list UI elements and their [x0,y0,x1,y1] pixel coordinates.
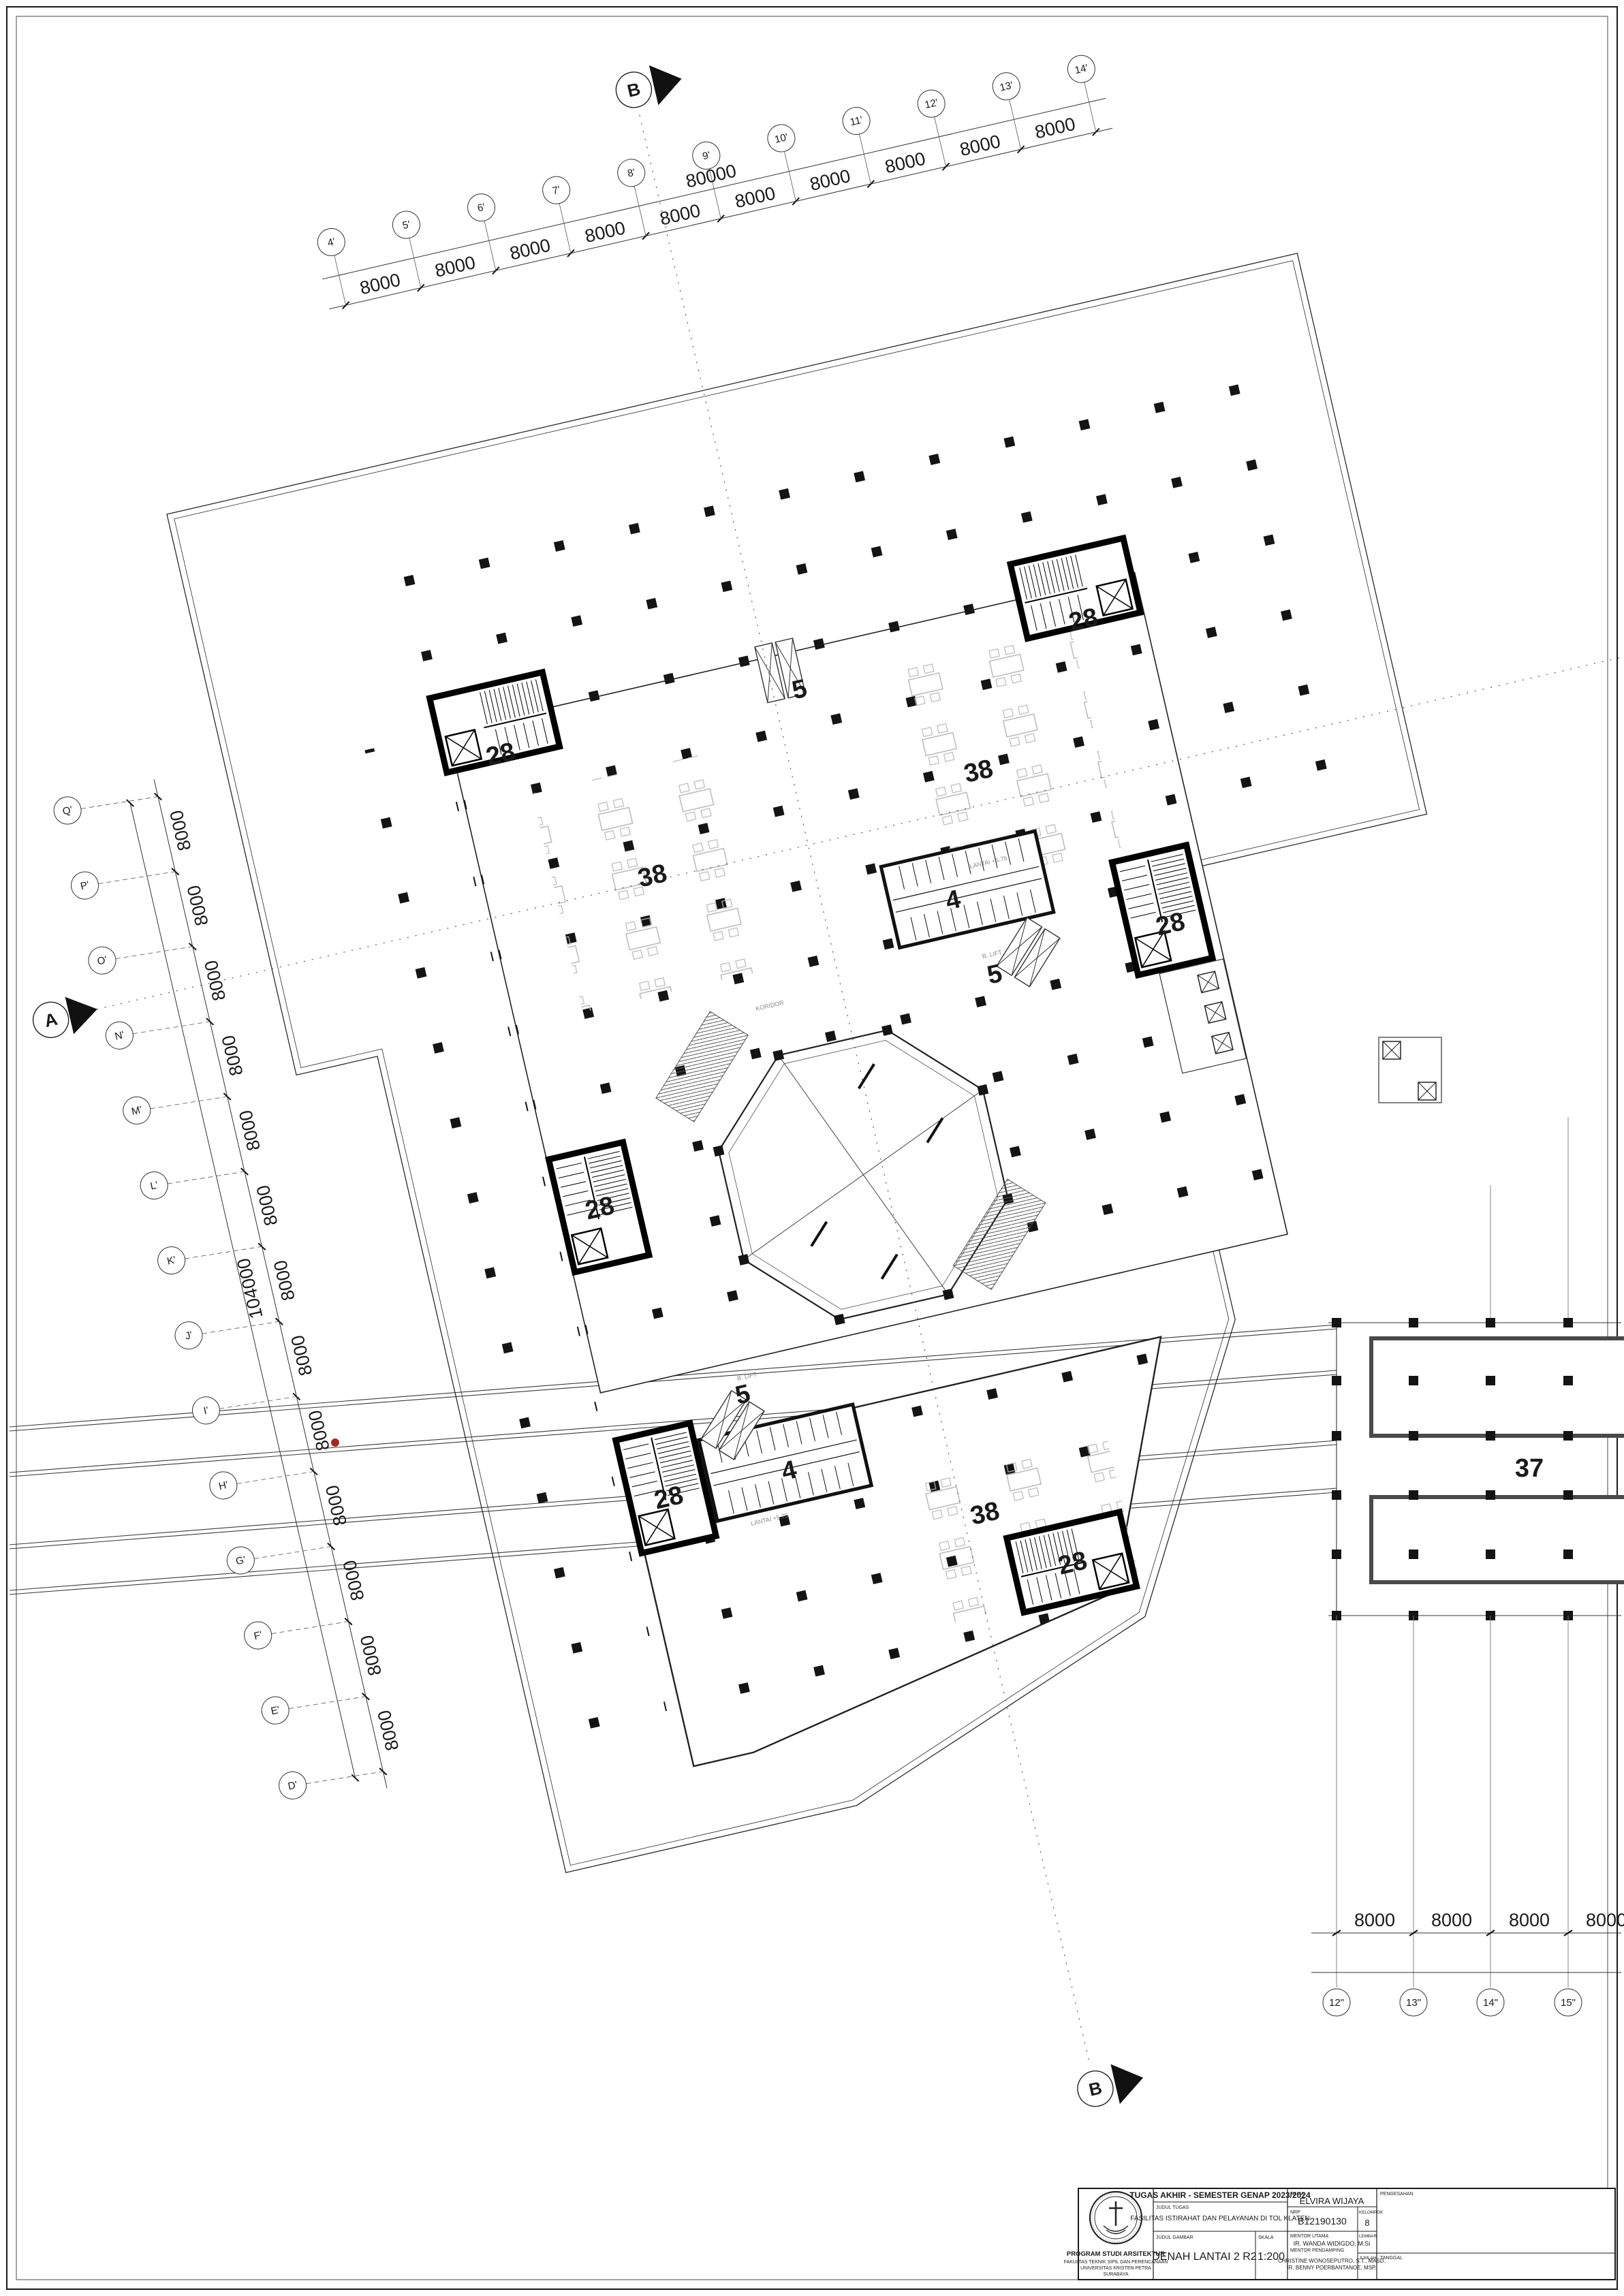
dim-8000: 8000 [1586,1910,1624,1930]
institution-line-1: PROGRAM STUDI ARSITEKTUR [1067,2250,1165,2258]
dim-8000: 8000 [358,270,402,299]
dim-8000: 8000 [200,958,230,1003]
institution-line-4: SURABAYA [1103,2272,1128,2277]
dim-8000: 8000 [1033,114,1077,143]
dim-8000: 8000 [958,131,1002,160]
dim-8000: 8000 [218,1033,247,1078]
grid-bubble-label: 14" [1483,1997,1498,2009]
mentor-utama-label: MENTOR UTAMA [1290,2234,1328,2239]
dim-8000: 8000 [235,1108,264,1152]
mentor-pendamping-label: MENTOR PENDAMPING [1290,2248,1344,2253]
grid-bubble-label: 12" [1329,1997,1344,2009]
section-marker-b-top: B [612,59,686,114]
dim-8000: 8000 [270,1258,299,1302]
left-grid-bubbles: Q' P' O' N' M' L' K' J' I' H' G' F' E' D… [51,794,309,1802]
nrp-label: NRP [1290,2210,1300,2215]
judul-gambar-value: DENAH LANTAI 2 R2 [1152,2251,1257,2263]
pengesahan-label: PENGESAHAN [1380,2192,1414,2197]
note-lift: B. LIFT [736,1371,758,1382]
kelompok-value: 8 [1364,2218,1369,2228]
institution-line-3: UNIVERSITAS KRISTEN PETRA [1080,2266,1151,2271]
top-grid-strip: 8000 8000 8000 8000 8000 8000 8000 8000 … [311,52,1113,311]
dim-8000: 8000 [356,1633,386,1678]
left-grid-strip: 8000 8000 8000 8000 8000 8000 8000 8000 … [51,771,411,1812]
bottom-grid-bubbles: 12" 13" 14" 15" [1323,1989,1582,2016]
dim-8000: 8000 [1509,1910,1550,1930]
section-marker-a: A [29,990,101,1042]
section-marker-b-bottom: B [1074,2058,1148,2113]
dim-8000: 8000 [508,235,552,264]
grid-bubble-label: 13" [1406,1997,1421,2009]
left-bay-dims: 8000 8000 8000 8000 8000 8000 8000 8000 … [131,808,403,1761]
judul-tugas-label: JUDUL TUGAS [1156,2205,1189,2210]
dim-104000: 104000 [233,1256,267,1321]
dim-8000: 8000 [808,166,852,195]
dim-8000: 8000 [1431,1910,1472,1930]
dim-8000: 8000 [658,200,702,230]
room-label-37: 37 [1515,1454,1544,1483]
drawing-sheet: 37 [0,0,1624,2296]
judul-tugas-value: FASILITAS ISTIRAHAT DAN PELAYANAN DI TOL… [1130,2215,1309,2222]
titleblock-header: TUGAS AKHIR - SEMESTER GENAP 2023/2024 [1129,2190,1311,2200]
title-block: PROGRAM STUDI ARSITEKTUR FAKULTAS TEKNIK… [1064,2188,1615,2280]
dim-8000: 8000 [304,1409,334,1453]
dim-8000: 8000 [322,1483,351,1528]
right-wing: 37 [1328,1037,1624,1620]
kelompok-label: KELOMPOK [1359,2210,1384,2215]
floor-plan-svg: 37 [0,0,1624,2296]
tanggal-label: TANGGAL [1380,2256,1403,2261]
nrp-value: B12190130 [1298,2216,1347,2227]
main-building: 28 28 28 28 28 28 38 38 38 4 4 5 5 5 B. … [0,0,1624,2287]
judul-gambar-label: JUDUL GAMBAR [1156,2235,1193,2240]
dim-8000: 8000 [253,1183,282,1227]
lembar-label: LEMBAR [1359,2234,1377,2239]
dim-8000: 8000 [183,883,213,928]
dim-8000: 8000 [1354,1910,1395,1930]
mentor-pendamping-2: IR. BENNY POERBANTANOE, MSP. [1287,2265,1376,2271]
top-bay-dims: 8000 8000 8000 8000 8000 8000 8000 8000 … [351,84,1077,298]
skala-label: SKALA [1258,2235,1274,2240]
wing-hall-lower [1371,1497,1624,1582]
dim-8000: 8000 [287,1333,317,1377]
dim-8000: 8000 [583,217,627,247]
dim-8000: 8000 [166,808,196,853]
dim-8000: 8000 [733,183,777,212]
jumlah-label: JUMLAH [1359,2256,1377,2261]
nama-value: ELVIRA WIJAYA [1300,2196,1364,2206]
dim-8000: 8000 [883,148,927,178]
dim-8000: 8000 [433,252,477,281]
wing-hall-upper [1371,1338,1624,1436]
dim-8000: 8000 [339,1558,369,1603]
mentor-utama-value: IR. WANDA WIDIGDO, M.Si [1294,2240,1371,2247]
grid-bubble-label: 15" [1561,1997,1576,2009]
dim-8000: 8000 [374,1708,403,1752]
bottom-grid-strip: 8000 8000 8000 8000 12" 13" 14" 15" [1311,1616,1624,2016]
